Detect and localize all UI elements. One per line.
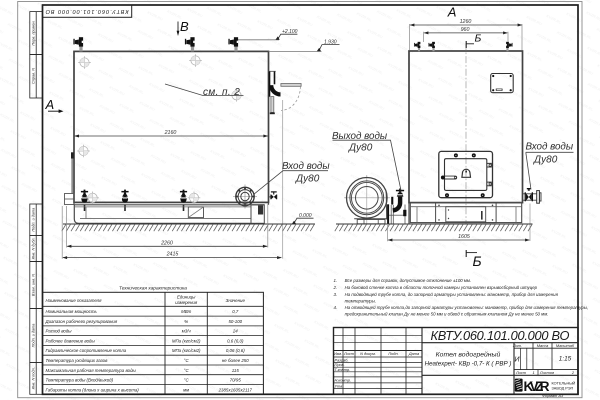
- svg-text:115: 115: [232, 368, 240, 373]
- svg-text:1605: 1605: [458, 234, 470, 240]
- svg-text:1.: 1.: [334, 278, 338, 283]
- svg-text:Наименование показателя: Наименование показателя: [46, 298, 103, 303]
- svg-text:Лист: Лист: [343, 351, 355, 356]
- svg-text:0,6 (6,0): 0,6 (6,0): [227, 338, 244, 343]
- svg-text:+2.100: +2.100: [282, 29, 298, 35]
- svg-text:Рабочее давление воды: Рабочее давление воды: [46, 338, 96, 343]
- svg-text:0,06 (0,6): 0,06 (0,6): [226, 348, 245, 353]
- svg-text:Габариты котла (длина х ширина: Габариты котла (длина х ширина х высота): [46, 387, 140, 392]
- svg-text:МПа (кгс/см2): МПа (кгс/см2): [172, 348, 201, 353]
- svg-text:Температура уходящих газов: Температура уходящих газов: [46, 358, 109, 363]
- svg-text:Подп.: Подп.: [388, 351, 398, 356]
- svg-text:°С: °С: [184, 358, 190, 363]
- svg-text:КОТЕЛЬНЫЙ: КОТЕЛЬНЫЙ: [552, 381, 576, 385]
- svg-text:Дата: Дата: [408, 351, 420, 356]
- svg-text:Все размеры для справок, допус: Все размеры для справок, допустимое откл…: [345, 278, 472, 283]
- svg-text:предохранительный клапан Ду н: предохранительный клапан Ду не менее 50 …: [345, 311, 549, 316]
- svg-text:Н.контр.: Н.контр.: [335, 378, 351, 383]
- svg-text:На боковой стенке котла в обла: На боковой стенке котла в области топочн…: [345, 285, 538, 290]
- svg-text:Диапазон рабочего регулировани: Диапазон рабочего регулирования: [45, 319, 118, 324]
- svg-text:24: 24: [232, 329, 238, 334]
- svg-text:Лист: Лист: [515, 370, 527, 375]
- svg-text:Ду80: Ду80: [348, 142, 373, 153]
- svg-text:А: А: [45, 97, 55, 112]
- svg-text:не более 250: не более 250: [222, 358, 249, 363]
- svg-text:1260: 1260: [460, 19, 472, 25]
- svg-text:1: 1: [533, 370, 535, 375]
- svg-text:0.000: 0.000: [299, 213, 312, 219]
- svg-text:На отводящей трубе котла,до за: На отводящей трубе котла,до запорной арм…: [345, 305, 589, 310]
- svg-text:Техническая характеристика: Техническая характеристика: [119, 286, 187, 292]
- svg-text:Котел водогрейный: Котел водогрейный: [436, 351, 501, 359]
- svg-text:Вход воды: Вход воды: [282, 161, 330, 172]
- svg-text:1.930: 1.930: [324, 39, 337, 45]
- svg-text:КВТУ.060.101.00.000 ВО: КВТУ.060.101.00.000 ВО: [45, 8, 129, 14]
- svg-text:На подводящей трубе котла, до: На подводящей трубе котла, до запорной а…: [345, 292, 559, 297]
- svg-text:Т.контр.: Т.контр.: [335, 367, 351, 372]
- svg-text:Значение: Значение: [226, 298, 246, 303]
- svg-text:Ду80: Ду80: [533, 154, 558, 165]
- svg-text:измерения: измерения: [175, 300, 198, 305]
- svg-text:Масштаб: Масштаб: [556, 343, 575, 348]
- svg-text:Б: Б: [475, 33, 482, 45]
- svg-text:Перв. примен.: Перв. примен.: [31, 20, 35, 45]
- svg-text:50-100: 50-100: [228, 319, 242, 324]
- svg-text:0,7: 0,7: [232, 309, 239, 314]
- svg-text:N докум.: N докум.: [360, 351, 376, 356]
- svg-text:Листов: Листов: [539, 370, 554, 375]
- svg-text:Изм.: Изм.: [334, 351, 342, 356]
- svg-text:Гидравлическое сопротивление к: Гидравлическое сопротивление котла: [46, 348, 127, 353]
- svg-text:МПа (кгс/см2): МПа (кгс/см2): [172, 338, 201, 343]
- svg-text:Б: Б: [473, 253, 482, 269]
- svg-text:70/95: 70/95: [230, 378, 242, 383]
- svg-text:Номинальная мощность: Номинальная мощность: [46, 309, 98, 314]
- svg-text:2415: 2415: [166, 252, 179, 258]
- svg-text:МВт: МВт: [181, 309, 192, 314]
- svg-text:Максимальная рабочая температу: Максимальная рабочая температура воды: [46, 368, 137, 373]
- svg-text:2260: 2260: [160, 240, 173, 246]
- svg-text:Лит.: Лит.: [512, 343, 522, 348]
- svg-text:Справ. N: Справ. N: [31, 68, 35, 84]
- svg-text:Вход воды: Вход воды: [526, 142, 574, 153]
- svg-text:KVZR: KVZR: [524, 379, 550, 394]
- svg-text:Расход воды: Расход воды: [46, 329, 73, 334]
- svg-text:4.: 4.: [334, 305, 338, 310]
- svg-text:см. п. 2: см. п. 2: [203, 87, 240, 98]
- svg-text:В: В: [180, 19, 189, 34]
- svg-text:%: %: [184, 319, 188, 324]
- svg-text:960: 960: [461, 27, 470, 33]
- svg-text:Температура воды (Вход/выход): Температура воды (Вход/выход): [46, 378, 114, 383]
- svg-text:Heatexpert- КВр -0,7- К ( РВР: Heatexpert- КВр -0,7- К ( РВР ): [425, 360, 512, 367]
- svg-text:3.: 3.: [334, 292, 338, 297]
- svg-text:Подп. и дата: Подп. и дата: [31, 324, 35, 348]
- svg-text:2.: 2.: [333, 285, 338, 290]
- svg-text:Ду80: Ду80: [295, 174, 320, 185]
- svg-text:2160: 2160: [164, 130, 177, 136]
- svg-text:Масса: Масса: [537, 343, 549, 348]
- svg-text:А: А: [447, 5, 457, 20]
- svg-text:Выход воды: Выход воды: [332, 131, 388, 142]
- svg-text:Взам. инв. N: Взам. инв. N: [31, 274, 35, 296]
- svg-text:°С: °С: [184, 368, 190, 373]
- svg-text:Единицы: Единицы: [177, 295, 196, 300]
- svg-text:Подп. и дата: Подп. и дата: [31, 208, 35, 232]
- svg-text:мм: мм: [183, 387, 189, 392]
- svg-text:ЗАВОД РЭП: ЗАВОД РЭП: [552, 387, 574, 391]
- svg-text:температуры.: температуры.: [345, 298, 376, 303]
- svg-text:Инв. N подл.: Инв. N подл.: [31, 367, 35, 389]
- svg-text:КВТУ.060.101.00.000 ВО: КВТУ.060.101.00.000 ВО: [431, 328, 570, 343]
- svg-text:1:15: 1:15: [559, 356, 572, 363]
- svg-text:Инв. N дубл.: Инв. N дубл.: [31, 237, 35, 259]
- svg-text:Утв.: Утв.: [335, 383, 344, 388]
- svg-text:2385х1605х2117: 2385х1605х2117: [218, 387, 253, 392]
- svg-text:°С: °С: [184, 378, 190, 383]
- svg-text:м3/ч: м3/ч: [182, 329, 192, 334]
